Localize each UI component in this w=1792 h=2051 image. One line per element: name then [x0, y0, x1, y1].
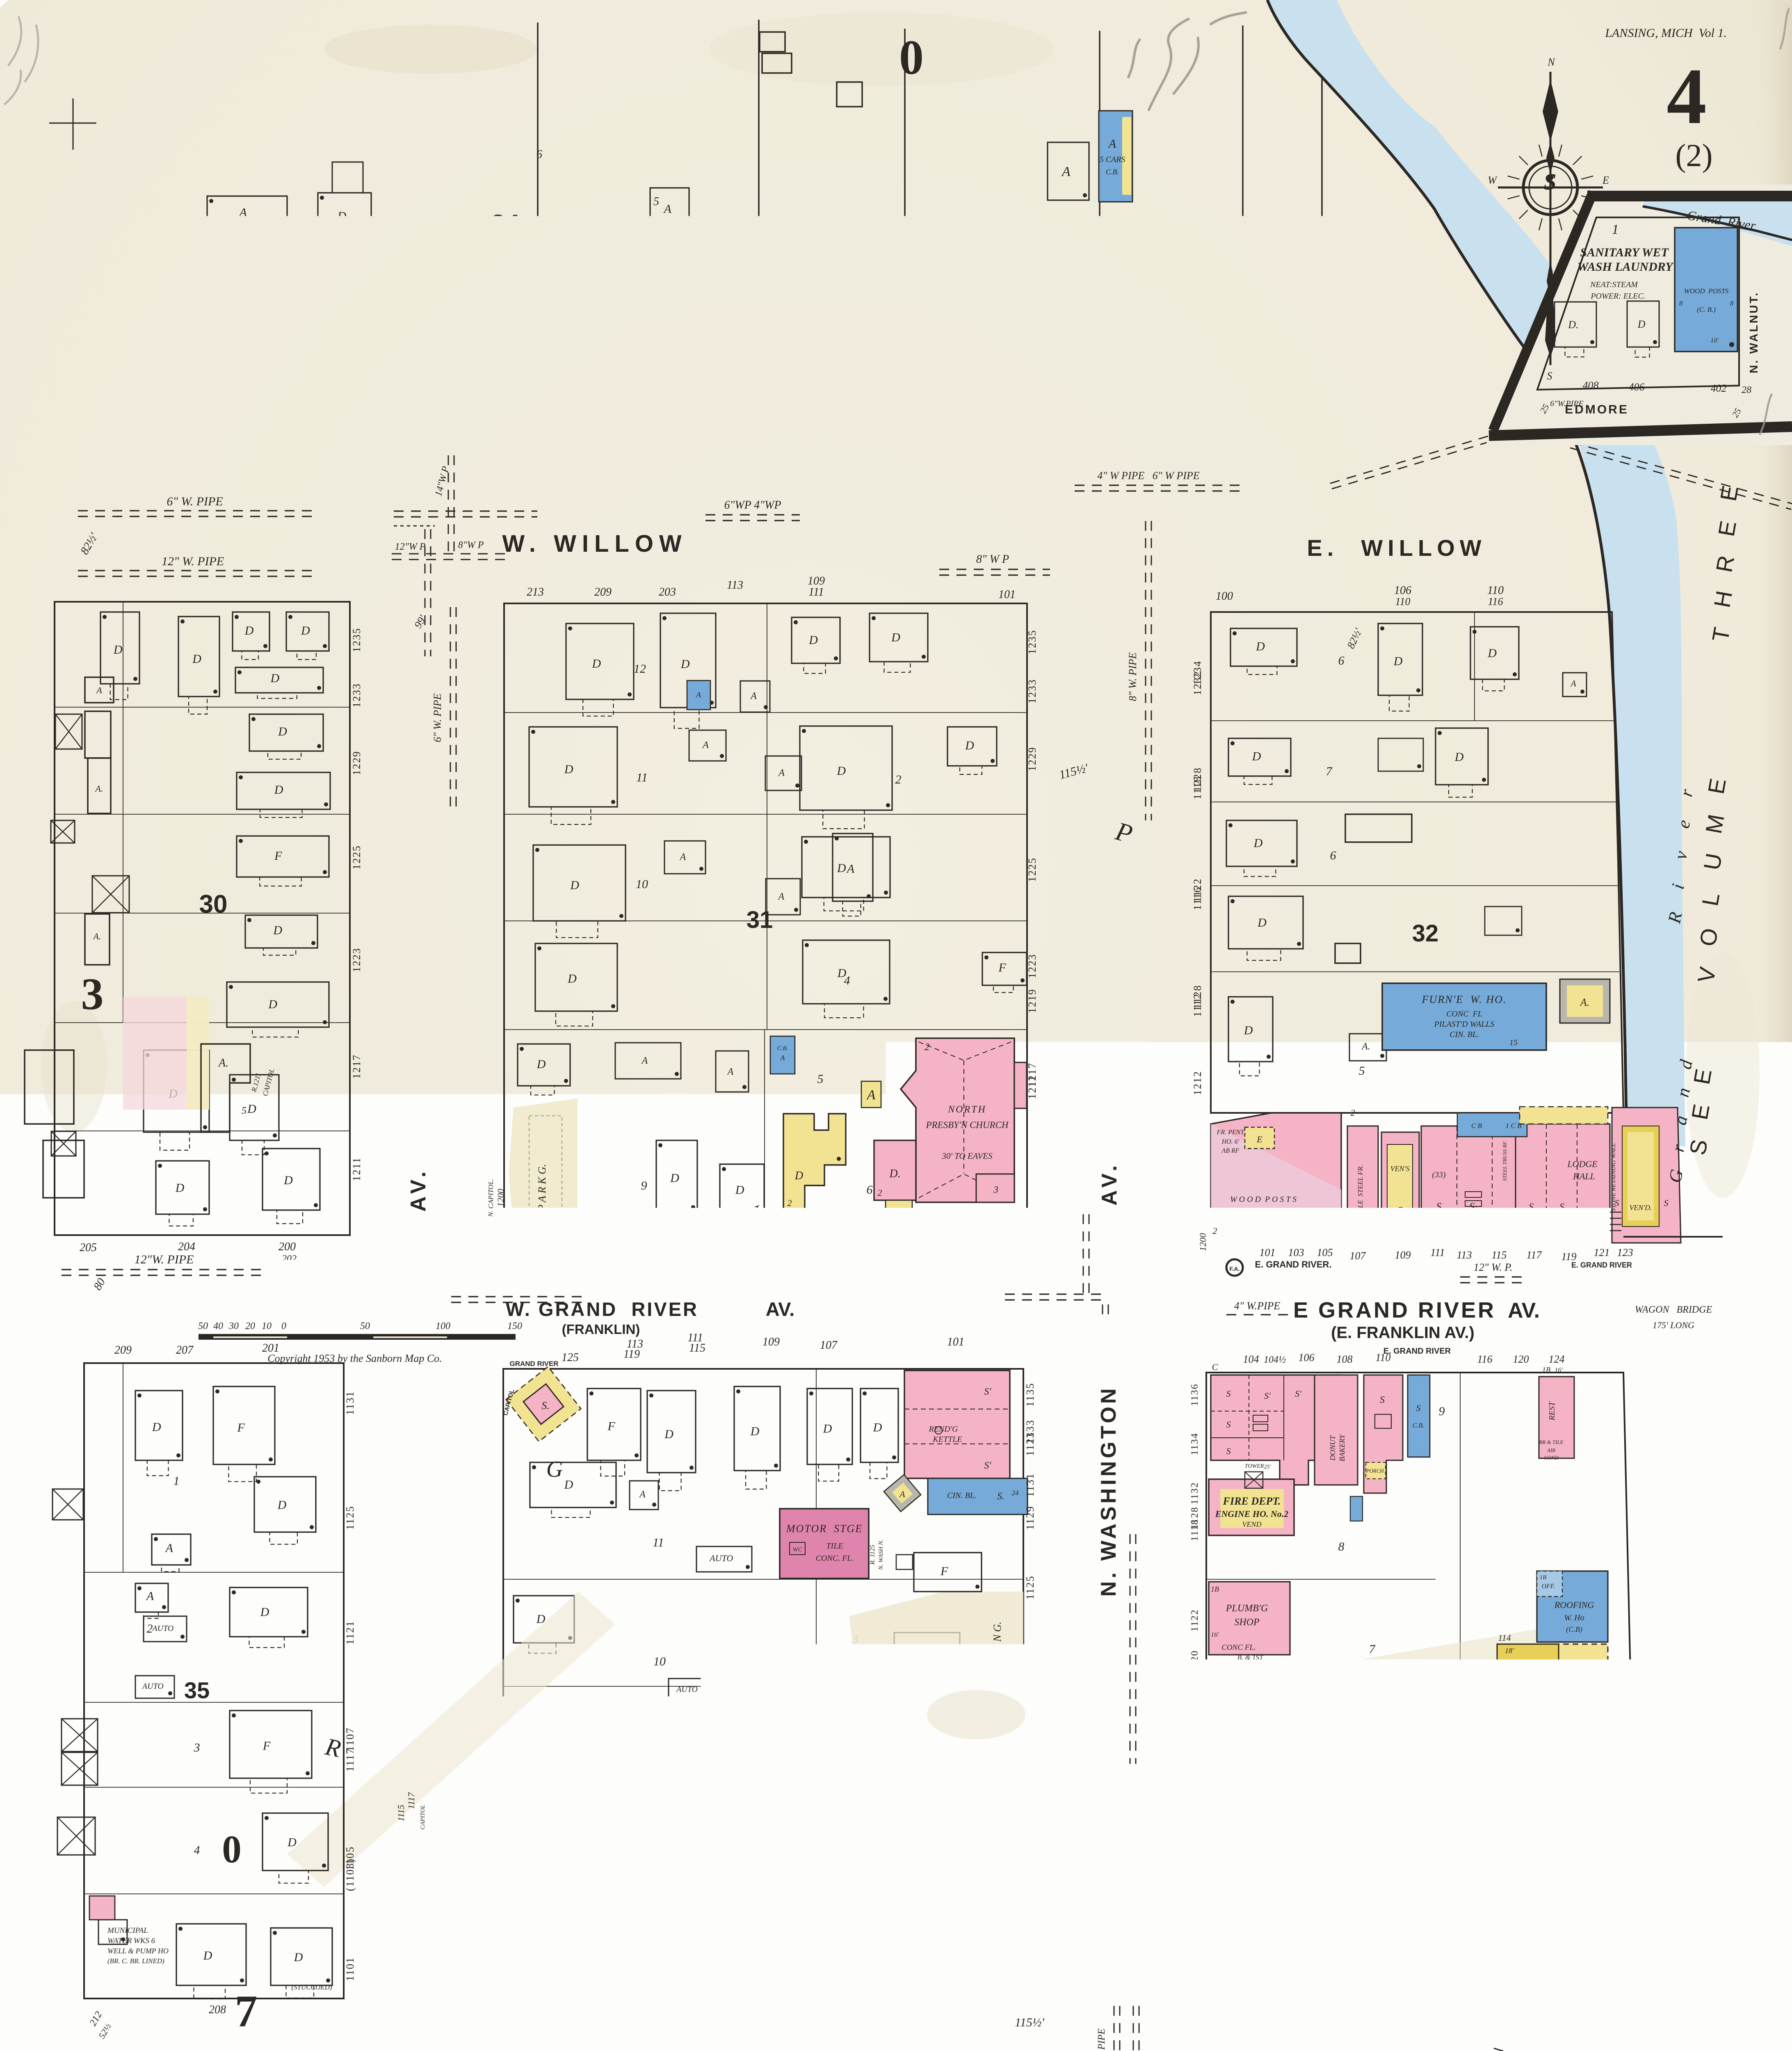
svg-text:12" C. B. & C. B. BR. F. WALLS: 12" C. B. & C. B. BR. F. WALLS. [1235, 1867, 1338, 1876]
svg-text:1129: 1129 [1024, 1505, 1036, 1530]
svg-text:120: 120 [753, 482, 772, 495]
svg-text:A: A [639, 1489, 646, 1500]
svg-text:COND: COND [1544, 1455, 1559, 1461]
svg-text:A: A [778, 768, 785, 779]
svg-text:WC: WC [793, 1546, 802, 1553]
svg-text:122: 122 [635, 1243, 652, 1256]
svg-text:DECK RF. & JOISTS: DECK RF. & JOISTS [1258, 1733, 1331, 1742]
svg-text:7: 7 [721, 1987, 728, 2001]
svg-text:AUTO: AUTO [676, 1685, 698, 1694]
svg-text:WASH LAUNDRY: WASH LAUNDRY [1577, 260, 1674, 274]
svg-text:D: D [152, 1421, 161, 1434]
svg-text:8: 8 [1730, 299, 1734, 307]
svg-text:1136: 1136 [484, 1391, 496, 1415]
svg-text:15: 15 [1509, 1038, 1518, 1047]
svg-text:WELL & PUMP HO: WELL & PUMP HO [107, 1947, 169, 1955]
svg-text:CONC FL.: CONC FL. [1221, 1643, 1256, 1652]
svg-text:D: D [273, 923, 282, 937]
svg-text:AUTO: AUTO [1548, 1864, 1563, 1870]
svg-text:A: A [96, 685, 102, 695]
svg-text:WATER WKS 6: WATER WKS 6 [107, 1937, 155, 1945]
svg-text:A.: A. [93, 931, 101, 941]
svg-text:12" W. PIPE: 12" W. PIPE [162, 555, 224, 568]
svg-text:D: D [564, 1478, 573, 1491]
svg-text:1125: 1125 [1024, 1575, 1036, 1599]
svg-text:ROOFING: ROOFING [1554, 1600, 1594, 1610]
svg-text:S: S [1397, 1205, 1403, 1217]
svg-text:(BR. C. BR. LINED): (BR. C. BR. LINED) [107, 1957, 164, 1965]
svg-text:9: 9 [1116, 1994, 1136, 2037]
svg-text:F: F [263, 1739, 271, 1753]
svg-text:1104: 1104 [1189, 1949, 1200, 1972]
svg-text:CIN. BL.: CIN. BL. [1450, 1030, 1479, 1039]
svg-text:3: 3 [993, 1185, 998, 1195]
svg-text:115: 115 [1491, 1249, 1507, 1261]
svg-text:CONC FL. METAL: CONC FL. METAL [749, 1869, 806, 1877]
svg-text:50: 50 [198, 1321, 208, 1332]
svg-text:1: 1 [986, 1871, 990, 1881]
svg-text:104½: 104½ [1264, 1354, 1286, 1365]
svg-text:1116: 1116 [1192, 886, 1203, 910]
svg-text:E GRAND RIVER: E GRAND RIVER [1293, 1298, 1496, 1322]
svg-text:4" W Pipe: 4" W Pipe [1504, 1325, 1548, 1336]
svg-text:D: D [113, 643, 123, 657]
svg-text:1200: 1200 [1198, 1233, 1208, 1251]
svg-text:109: 109 [762, 1336, 780, 1348]
svg-text:1223: 1223 [351, 948, 363, 972]
svg-text:POST OFFICE: POST OFFICE [1238, 1803, 1333, 1818]
svg-text:111: 111 [687, 1332, 703, 1344]
svg-text:A: A [727, 1067, 734, 1077]
svg-text:113: 113 [627, 1338, 643, 1350]
svg-text:W. HO.: W. HO. [1510, 1660, 1543, 1671]
svg-text:1116: 1116 [1189, 1806, 1200, 1828]
svg-text:REST: REST [1548, 1401, 1557, 1421]
svg-text:1113: 1113 [1024, 1777, 1036, 1800]
svg-text:S.: S. [541, 1400, 550, 1411]
svg-text:AIR: AIR [1547, 1447, 1555, 1453]
svg-text:D: D [1487, 646, 1497, 660]
svg-text:D: D [266, 417, 275, 430]
svg-text:1107: 1107 [344, 1727, 356, 1751]
svg-text:A: A [777, 891, 784, 902]
svg-text:STEEL TRUSS RF.: STEEL TRUSS RF. [1502, 1141, 1508, 1181]
svg-text:C. B. WALLS.: C. B. WALLS. [1257, 1744, 1302, 1753]
svg-text:12"W. PIPE: 12"W. PIPE [135, 1253, 194, 1266]
svg-text:CAPITOL: CAPITOL [420, 1805, 426, 1830]
svg-text:30: 30 [228, 1321, 239, 1332]
svg-text:W. GRAND RIVER: W. GRAND RIVER [506, 1298, 699, 1320]
svg-text:113: 113 [1364, 2008, 1379, 2020]
svg-text:NEAT:STEAM: NEAT:STEAM [1590, 280, 1638, 289]
svg-text:10: 10 [636, 877, 648, 891]
svg-text:16′: 16′ [1555, 1367, 1563, 1374]
svg-text:1 C B: 1 C B [1506, 1122, 1522, 1130]
svg-text:WAGON BRIDGE: WAGON BRIDGE [1635, 1304, 1712, 1315]
svg-text:206: 206 [208, 478, 227, 492]
svg-text:2: 2 [1477, 1958, 1481, 1967]
svg-text:D: D [270, 671, 279, 685]
svg-text:111: 111 [1495, 2020, 1508, 2031]
svg-text:D: D [268, 998, 277, 1011]
svg-text:30' TO EAVES: 30' TO EAVES [941, 1151, 993, 1161]
svg-text:114: 114 [849, 482, 866, 495]
svg-text:D.H.: D.H. [384, 1280, 402, 1290]
svg-text:D: D [1256, 640, 1265, 653]
svg-text:CIN. BL.: CIN. BL. [947, 1491, 977, 1500]
svg-text:1211: 1211 [351, 1157, 363, 1181]
svg-text:Noncomb 1958: Noncomb 1958 [754, 1857, 804, 1866]
svg-text:1125: 1125 [344, 1505, 356, 1530]
svg-text:150: 150 [507, 1321, 522, 1332]
svg-text:104: 104 [1243, 1353, 1259, 1365]
svg-text:D: D [337, 210, 347, 223]
svg-text:2B: 2B [1246, 1896, 1255, 1905]
svg-text:R. 1125: R. 1125 [869, 1545, 876, 1565]
svg-text:WOOD POSTS: WOOD POSTS [1684, 287, 1729, 295]
svg-text:C. B.: C. B. [985, 1766, 1000, 1775]
svg-text:D: D [301, 624, 310, 637]
svg-text:FR. PENT: FR. PENT [1217, 1129, 1245, 1136]
svg-text:A.: A. [1361, 1041, 1370, 1052]
svg-text:1107: 1107 [1024, 1944, 1036, 1969]
svg-text:AB RF: AB RF [1221, 1147, 1239, 1154]
svg-text:1233: 1233 [1026, 679, 1038, 703]
svg-text:E. GRAND RIVER: E. GRAND RIVER [1571, 1261, 1632, 1269]
svg-text:1219: 1219 [1026, 989, 1038, 1013]
svg-text:210: 210 [161, 478, 180, 492]
svg-text:1122: 1122 [1189, 1609, 1200, 1631]
svg-text:S T E E L C O L S &: S T E E L C O L S & [1257, 1937, 1331, 1946]
svg-text:D.H.: D.H. [402, 496, 420, 506]
svg-text:1120: 1120 [1189, 1650, 1200, 1672]
svg-text:209: 209 [114, 1344, 132, 1357]
svg-text:S′: S′ [984, 1386, 991, 1397]
svg-text:406: 406 [1629, 381, 1645, 393]
svg-text:1229: 1229 [351, 751, 363, 775]
svg-text:112: 112 [820, 1242, 836, 1255]
svg-text:213: 213 [527, 586, 544, 598]
svg-text:14′: 14′ [1219, 1729, 1228, 1737]
svg-text:100: 100 [436, 1321, 450, 1332]
svg-text:Noncomb 1958: Noncomb 1958 [1256, 1838, 1307, 1847]
svg-text:140: 140 [418, 478, 436, 492]
svg-text:D: D [1057, 385, 1066, 398]
svg-text:D: D [869, 423, 878, 436]
svg-text:8" W P: 8" W P [976, 553, 1009, 566]
svg-text:D: D [1454, 750, 1464, 764]
svg-text:D: D [1370, 419, 1380, 432]
svg-text:D: D [680, 657, 690, 671]
svg-text:STONE RETAINING WALL: STONE RETAINING WALL [1610, 1143, 1617, 1211]
svg-text:CONC.: CONC. [1123, 251, 1147, 260]
svg-text:D: D [570, 878, 579, 892]
svg-text:A: A [663, 202, 672, 216]
svg-text:F: F [607, 1420, 615, 1433]
svg-text:D: D [779, 414, 788, 428]
svg-text:120: 120 [1513, 1353, 1529, 1365]
svg-text:112: 112 [792, 2006, 808, 2019]
svg-text:PILAST'D WALLS: PILAST'D WALLS [1434, 1020, 1495, 1029]
svg-text:FLS.1&2: FLS.1&2 [1120, 262, 1151, 271]
svg-text:VEND.: VEND. [1123, 368, 1147, 377]
svg-text:105: 105 [1317, 1247, 1333, 1258]
svg-text:S′: S′ [1264, 1391, 1271, 1401]
svg-text:6" W. PIPE: 6" W. PIPE [1096, 2028, 1107, 2051]
svg-text:D: D [1393, 655, 1403, 668]
svg-text:A: A [836, 2015, 842, 2026]
svg-text:102: 102 [1066, 480, 1084, 493]
svg-text:128: 128 [619, 482, 637, 495]
svg-text:11: 11 [636, 771, 648, 784]
svg-text:D: D [559, 1928, 568, 1942]
svg-text:134: 134 [543, 478, 561, 492]
svg-text:ELEC. CONTRS: ELEC. CONTRS [840, 1866, 906, 1877]
svg-text:1111: 1111 [1024, 1846, 1036, 1870]
svg-text:3: 3 [81, 969, 104, 1019]
svg-text:113: 113 [727, 579, 743, 592]
svg-text:D: D [1637, 318, 1646, 330]
svg-text:E. WILLOW: E. WILLOW [1307, 535, 1486, 561]
svg-text:FIRE DEPT.: FIRE DEPT. [1223, 1495, 1281, 1507]
svg-text:W O O D P O S T S: W O O D P O S T S [1230, 1195, 1297, 1204]
svg-text:D: D [557, 1841, 566, 1854]
svg-text:25′: 25′ [1264, 1464, 1271, 1470]
svg-text:D: D [837, 861, 846, 875]
svg-text:AV.: AV. [1508, 1299, 1540, 1322]
svg-text:CONC. FL.: CONC. FL. [816, 1554, 854, 1563]
svg-text:5: 5 [1447, 1843, 1453, 1857]
svg-text:12" W. P.: 12" W. P. [1474, 1261, 1513, 1273]
svg-text:B. & 1ST: B. & 1ST [1237, 1654, 1264, 1661]
svg-text:10: 10 [653, 1655, 666, 1668]
svg-text:8: 8 [604, 1889, 610, 1902]
svg-text:E. GRAND RIVER.: E. GRAND RIVER. [1255, 1259, 1331, 1270]
svg-text:(111): (111) [1343, 499, 1364, 511]
svg-text:D: D [192, 652, 201, 666]
svg-text:W: W [1488, 174, 1498, 186]
svg-text:(1103): (1103) [344, 1858, 356, 1891]
svg-text:D: D [287, 1836, 297, 1849]
svg-text:D: D [735, 1183, 744, 1197]
svg-text:115½': 115½' [1015, 2016, 1044, 2029]
svg-text:OFFICES: OFFICES [1136, 301, 1186, 315]
svg-text:D: D [995, 427, 1004, 441]
svg-text:D: D [685, 1944, 694, 1957]
svg-text:8"W P: 8"W P [458, 540, 484, 550]
svg-text:D: D [277, 1498, 287, 1512]
svg-text:C B: C B [1471, 1122, 1482, 1130]
svg-text:5: 5 [653, 195, 659, 208]
svg-text:111: 111 [808, 586, 824, 598]
svg-text:204: 204 [262, 478, 280, 492]
svg-text:DONUT: DONUT [1329, 1435, 1337, 1461]
svg-text:108: 108 [1337, 1353, 1353, 1365]
svg-text:5 CARS: 5 CARS [1100, 155, 1125, 164]
svg-text:D: D [836, 764, 846, 778]
svg-text:C. B. (4): C. B. (4) [836, 1745, 867, 1756]
svg-text:W A L L S.: W A L L S. [1258, 1959, 1293, 1968]
svg-text:S: S [1226, 1419, 1231, 1430]
svg-text:7: 7 [1369, 1642, 1376, 1656]
svg-text:S: S [1543, 169, 1556, 195]
svg-text:AUTO: AUTO [142, 1682, 164, 1691]
svg-text:N. CAPITOL.: N. CAPITOL. [487, 1179, 495, 1217]
svg-text:107: 107 [1350, 1250, 1366, 1262]
svg-text:125: 125 [1610, 2005, 1626, 2017]
svg-text:ENGINE HO. No.2: ENGINE HO. No.2 [1215, 1509, 1288, 1519]
svg-text:2: 2 [147, 1622, 153, 1635]
svg-text:D: D [244, 624, 254, 637]
svg-text:28: 28 [1742, 385, 1751, 395]
svg-text:D: D [294, 1951, 303, 1964]
svg-text:208: 208 [209, 2003, 226, 2016]
svg-text:E: E [1602, 174, 1609, 186]
svg-text:124: 124 [1549, 1353, 1565, 1365]
svg-text:APT'S: APT'S [1494, 1938, 1518, 1948]
svg-text:D: D [278, 725, 287, 738]
svg-text:202: 202 [282, 1254, 297, 1264]
svg-text:20: 20 [245, 1321, 255, 1332]
svg-text:4: 4 [1372, 1919, 1378, 1930]
svg-text:31: 31 [746, 907, 773, 933]
svg-text:D: D [891, 630, 900, 644]
svg-text:W. HO.: W. HO. [858, 1881, 887, 1891]
svg-text:110: 110 [1395, 596, 1410, 608]
svg-text:D: D [1257, 916, 1267, 930]
svg-text:24: 24 [1012, 1489, 1019, 1497]
svg-text:S: S [1664, 1198, 1669, 1208]
svg-text:1B: 1B [1526, 1679, 1534, 1687]
svg-text:402: 402 [1711, 382, 1727, 394]
svg-text:D: D [637, 424, 646, 437]
svg-text:6: 6 [1338, 654, 1345, 667]
svg-text:1: 1 [173, 1474, 180, 1488]
svg-text:D: D [205, 425, 215, 439]
svg-text:S: S [1559, 1202, 1564, 1213]
svg-text:A: A [146, 1590, 154, 1603]
svg-text:125: 125 [562, 1351, 579, 1364]
svg-text:1B: 1B [1540, 1574, 1547, 1581]
svg-text:D.: D. [1199, 1712, 1208, 1721]
svg-text:34: 34 [733, 1663, 759, 1689]
svg-text:2: 2 [1351, 1108, 1355, 1118]
svg-text:AV.: AV. [766, 1298, 795, 1320]
svg-text:207: 207 [176, 1344, 194, 1357]
svg-text:25′: 25′ [1130, 238, 1141, 248]
svg-text:S′: S′ [1295, 1389, 1302, 1399]
svg-text:0: 0 [222, 1827, 242, 1871]
svg-text:A: A [1061, 164, 1071, 179]
svg-text:1200: 1200 [495, 1189, 506, 1207]
svg-text:D.H.: D.H. [1218, 509, 1235, 518]
svg-text:30: 30 [199, 890, 228, 918]
svg-text:16′: 16′ [1211, 1631, 1219, 1638]
svg-text:PORCH: PORCH [1365, 1468, 1384, 1474]
svg-text:117: 117 [1489, 2008, 1505, 2020]
svg-text:4" W PIPE 6" W PIPE: 4" W PIPE 6" W PIPE [1097, 470, 1199, 482]
svg-text:T.H.: T.H. [1002, 1241, 1018, 1251]
svg-text:D: D [794, 1169, 803, 1182]
svg-text:W. Ho: W. Ho [1564, 1613, 1584, 1622]
svg-text:1235: 1235 [351, 628, 363, 652]
svg-text:A: A [750, 691, 757, 701]
svg-text:114: 114 [1498, 1633, 1511, 1643]
svg-text:102 W.MAPLE: 102 W.MAPLE [898, 2005, 964, 2017]
svg-text:1115: 1115 [396, 1805, 406, 1822]
svg-text:1136: 1136 [1189, 1383, 1200, 1406]
svg-text:AV.: AV. [1098, 1161, 1121, 1206]
svg-text:121: 121 [1594, 1247, 1610, 1258]
svg-text:WELFARE: WELFARE [1119, 445, 1187, 460]
svg-text:1212: 1212 [1192, 1071, 1203, 1095]
svg-text:S′: S′ [948, 1873, 957, 1886]
svg-text:1B: 1B [1542, 1366, 1550, 1374]
svg-text:1134: 1134 [1189, 1432, 1200, 1455]
svg-text:110: 110 [904, 482, 922, 495]
svg-text:PLUMB'G: PLUMB'G [1226, 1603, 1268, 1614]
svg-text:0: 0 [899, 30, 924, 85]
svg-text:12: 12 [634, 662, 646, 676]
svg-text:D: D [1244, 1024, 1253, 1037]
svg-text:4: 4 [1666, 52, 1707, 141]
svg-text:TILE: TILE [826, 1542, 843, 1551]
svg-text:D: D [283, 1174, 293, 1187]
svg-text:110: 110 [1487, 584, 1504, 597]
svg-text:DEPT OF SOCIAL: DEPT OF SOCIAL [1094, 427, 1211, 443]
svg-text:S: S [1547, 370, 1552, 382]
svg-text:4: 4 [194, 1843, 200, 1857]
svg-text:D.: D. [1568, 319, 1578, 331]
svg-text:JOISTS SUSPD CEIL′G.: JOISTS SUSPD CEIL′G. [1245, 1858, 1327, 1866]
svg-text:408: 408 [1583, 379, 1599, 391]
svg-text:I.O.O.F. TEMPLE: I.O.O.F. TEMPLE [1246, 1908, 1358, 1923]
svg-text:1: 1 [1612, 222, 1619, 237]
svg-text:CONC. FL. METAL DECK RF &: CONC. FL. METAL DECK RF & [1233, 1848, 1339, 1857]
svg-text:1108: 1108 [1189, 1875, 1200, 1898]
svg-text:A: A [679, 852, 686, 862]
svg-text:D: D [808, 633, 818, 647]
svg-text:A: A [846, 862, 855, 876]
svg-text:C.B.: C.B. [777, 1045, 788, 1052]
svg-text:205: 205 [80, 1241, 97, 1254]
svg-text:AUTO: AUTO [932, 1994, 954, 2003]
svg-text:6" W. PIPE: 6" W. PIPE [431, 693, 443, 742]
svg-text:8" C.B. WALLS.: 8" C.B. WALLS. [753, 1889, 801, 1897]
svg-text:VEN'D.: VEN'D. [1629, 1204, 1652, 1212]
svg-text:F: F [998, 961, 1006, 974]
svg-text:6"W.PIPE: 6"W.PIPE [1550, 399, 1584, 408]
svg-text:A: A [966, 368, 974, 381]
svg-text:6: 6 [536, 148, 542, 161]
svg-text:1118: 1118 [1192, 776, 1203, 799]
svg-text:1232: 1232 [1192, 671, 1203, 695]
svg-text:N: N [1547, 56, 1555, 68]
svg-text:SANITARY WET: SANITARY WET [1580, 246, 1669, 259]
svg-text:201: 201 [262, 1342, 279, 1354]
svg-text:4: 4 [836, 387, 842, 401]
svg-text:8" W. PIPE: 8" W. PIPE [1127, 652, 1139, 701]
svg-text:A: A [1570, 678, 1576, 689]
svg-text:S: S [1380, 1395, 1385, 1405]
svg-text:A: A [239, 206, 247, 219]
svg-text:S: S [1226, 1389, 1231, 1399]
svg-text:BR & TILE: BR & TILE [1539, 1439, 1563, 1445]
svg-text:S: S [1436, 1201, 1442, 1213]
svg-text:Noncomb 1957: Noncomb 1957 [1260, 1708, 1316, 1719]
svg-text:1102: 1102 [484, 1969, 496, 1993]
svg-text:F: F [940, 1565, 948, 1578]
